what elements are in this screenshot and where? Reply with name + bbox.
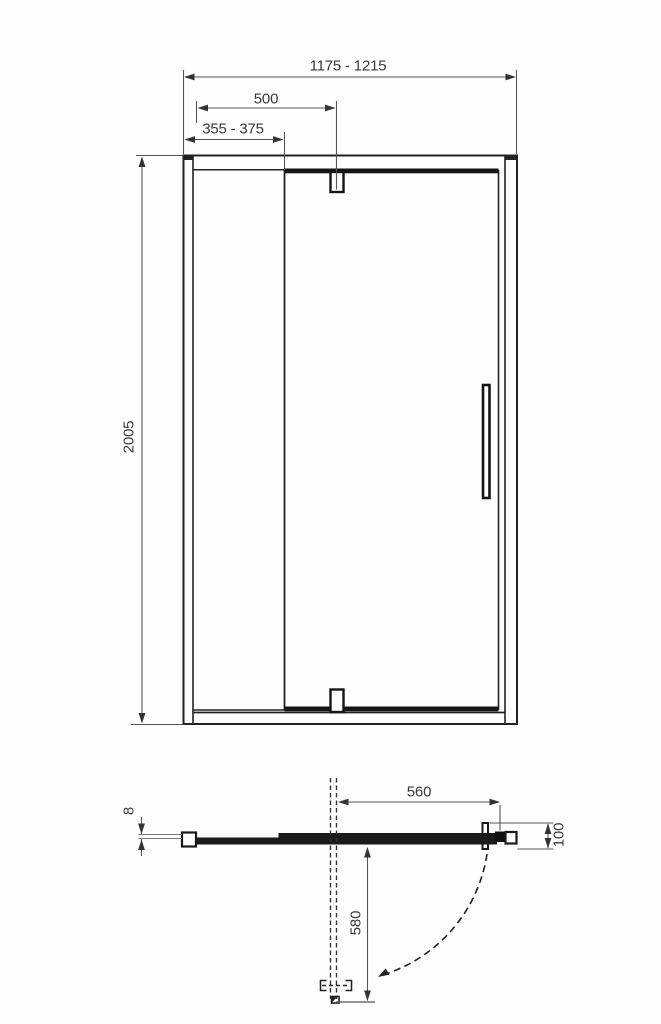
dim-fixed-panel — [185, 132, 285, 170]
left-wall-bracket — [182, 833, 196, 847]
door-bottom-rail — [285, 707, 499, 712]
swing-arc — [379, 854, 487, 976]
dim-label-glass-thickness: 8 — [121, 807, 138, 815]
left-profile-cap — [184, 156, 194, 161]
dim-label-pivot-offset: 500 — [254, 91, 278, 108]
door-handle — [483, 385, 490, 498]
right-wall-bracket — [506, 832, 517, 844]
swing-arc-arrowhead — [376, 968, 389, 980]
panel-bar — [196, 833, 497, 845]
shower-door-technical-drawing — [0, 0, 661, 1024]
front-dimensions — [131, 70, 517, 725]
door-end-block — [495, 832, 506, 843]
right-profile-cap — [505, 156, 517, 161]
technical-drawing-page: 1175 - 1215 500 355 - 375 2005 8 560 100… — [0, 0, 661, 1024]
dim-height — [131, 156, 183, 725]
dim-label-profile-depth: 100 — [551, 823, 568, 847]
door-top-rail — [285, 169, 499, 174]
dim-glass-thickness — [138, 817, 182, 856]
dim-label-height: 2005 — [121, 421, 138, 454]
dim-label-overall-width: 1175 - 1215 — [310, 58, 387, 75]
pivot-axis-line — [331, 778, 337, 999]
dim-pivot-offset — [197, 101, 337, 190]
front-view — [184, 156, 518, 725]
bottom-pivot-bracket — [331, 690, 344, 713]
dim-label-door-width: 560 — [407, 784, 431, 801]
frame-outline — [184, 156, 518, 725]
dim-label-swing-depth: 580 — [348, 911, 365, 935]
dim-overall-width — [184, 70, 517, 154]
plan-view — [182, 778, 517, 1003]
dim-label-fixed-panel: 355 - 375 — [202, 121, 264, 138]
dim-door-width — [338, 799, 500, 831]
plan-dimensions — [138, 799, 553, 1002]
